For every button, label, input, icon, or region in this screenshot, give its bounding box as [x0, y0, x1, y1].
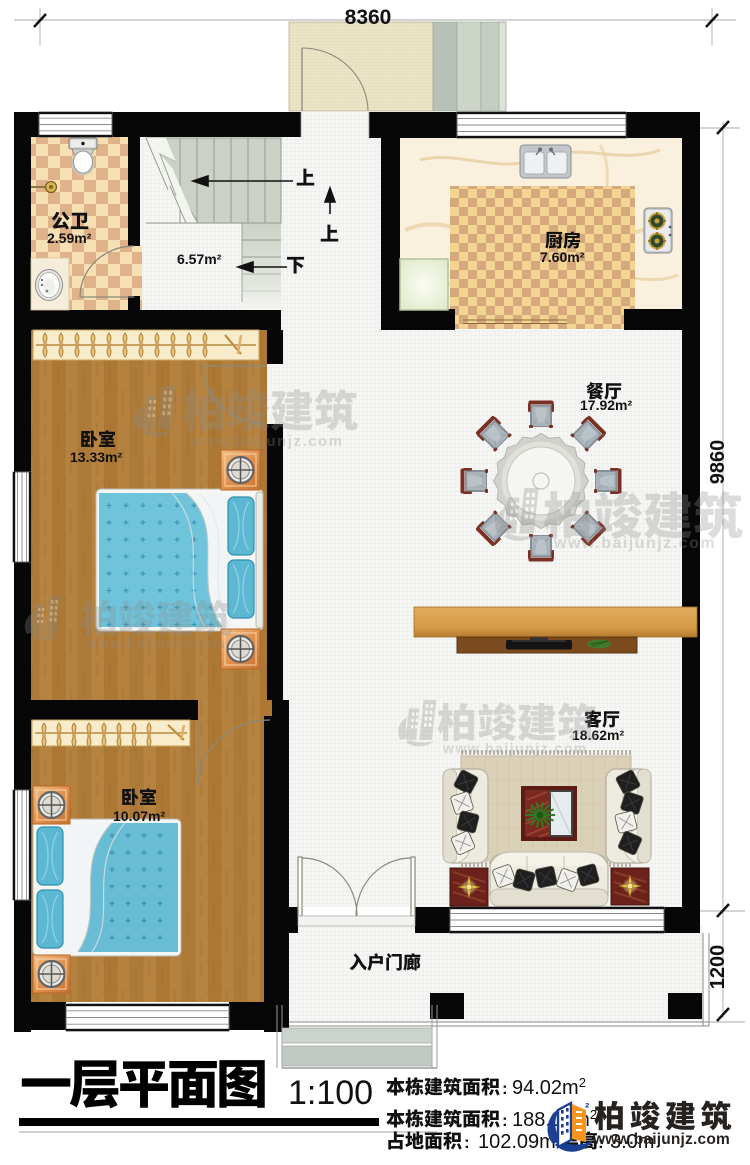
svg-text:17.92m²: 17.92m²	[580, 397, 632, 413]
svg-text:1:100: 1:100	[288, 1074, 373, 1112]
svg-text:www.baijunjz.com: www.baijunjz.com	[553, 535, 716, 552]
svg-text::: :	[464, 1133, 470, 1152]
svg-text:7.60m²: 7.60m²	[540, 249, 585, 265]
svg-text::: :	[502, 1111, 508, 1130]
svg-text:www.baijunjz.com: www.baijunjz.com	[442, 740, 588, 756]
svg-text:www.baijunjz.com: www.baijunjz.com	[189, 433, 343, 450]
svg-text:1200: 1200	[707, 945, 729, 990]
svg-text:www.baijunjz.com: www.baijunjz.com	[592, 1131, 730, 1148]
svg-text:www.baijunjz.com: www.baijunjz.com	[85, 636, 227, 651]
svg-text:²: ²	[585, 1100, 590, 1115]
svg-text:2.59m²: 2.59m²	[47, 230, 92, 246]
svg-text:9860: 9860	[707, 440, 729, 485]
svg-text:10.07m²: 10.07m²	[113, 808, 165, 824]
svg-text:6.57m²: 6.57m²	[177, 251, 222, 267]
svg-text:8360: 8360	[345, 6, 392, 29]
svg-text:94.02m2: 94.02m2	[512, 1075, 586, 1099]
svg-text:13.33m²: 13.33m²	[70, 449, 122, 465]
svg-text::: :	[502, 1079, 508, 1098]
